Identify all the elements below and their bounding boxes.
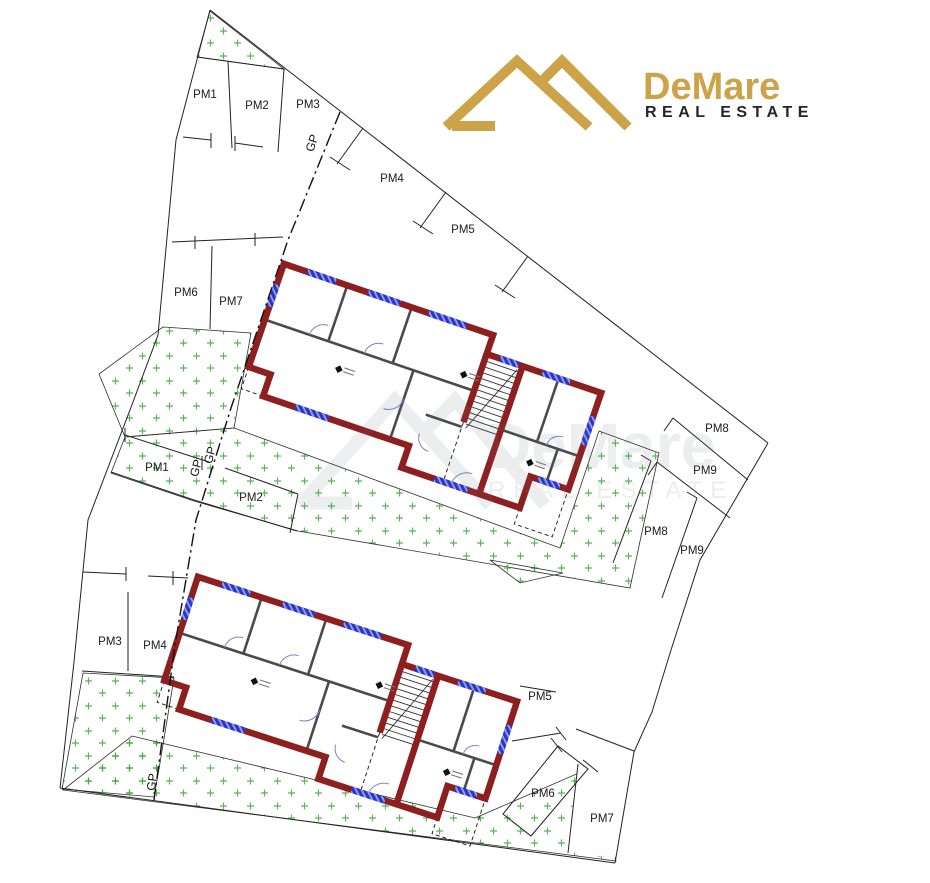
parking-label-pm1-lower: PM1: [145, 462, 169, 474]
parking-label-pm2-lower: PM2: [239, 492, 263, 504]
logo-mountains-icon: [446, 61, 628, 127]
parking-label-pm6-upper: PM6: [174, 287, 198, 299]
parking-label-pm5-upper: PM5: [451, 224, 475, 236]
parking-label-pm5-lower: PM5: [528, 691, 552, 703]
parking-label-pm6-lower: PM6: [531, 788, 555, 800]
parking-label-pm7-lower: PM7: [590, 813, 614, 825]
parking-label-pm9-lower: PM9: [680, 545, 704, 557]
gp-label-top: GP: [303, 133, 322, 154]
logo-tagline-text: REAL ESTATE: [645, 104, 814, 121]
parking-label-pm2-upper: PM2: [245, 100, 269, 112]
parking-label-pm8-lower: PM8: [644, 526, 668, 538]
parking-label-pm4-lower: PM4: [143, 640, 167, 652]
site-plan-page: PM1 PM2 PM3 PM4 PM5 PM6 PM7 PM8 PM9 PM1 …: [0, 0, 930, 883]
grass-top-triangle: [197, 11, 284, 69]
parking-label-pm7-upper: PM7: [219, 296, 243, 308]
watermark-tagline-text: REAL ESTATE: [488, 477, 734, 504]
parking-bays-pm1-pm3: [183, 57, 284, 152]
logo: DeMare REAL ESTATE: [446, 61, 814, 127]
grass-left-mid: [99, 327, 251, 437]
logo-brand-text: DeMare: [643, 66, 780, 108]
parking-label-pm3-upper: PM3: [296, 99, 320, 111]
parking-label-pm3-lower: PM3: [98, 636, 122, 648]
parking-label-pm4-upper: PM4: [380, 173, 404, 185]
site-plan-drawing: PM1 PM2 PM3 PM4 PM5 PM6 PM7 PM8 PM9 PM1 …: [0, 0, 930, 883]
watermark-brand-text: DeMare: [485, 410, 716, 482]
parking-bays-pm4-pm5: [330, 128, 528, 298]
parking-label-pm1-upper: PM1: [193, 89, 217, 101]
gp-label-bottom: GP: [144, 772, 160, 791]
